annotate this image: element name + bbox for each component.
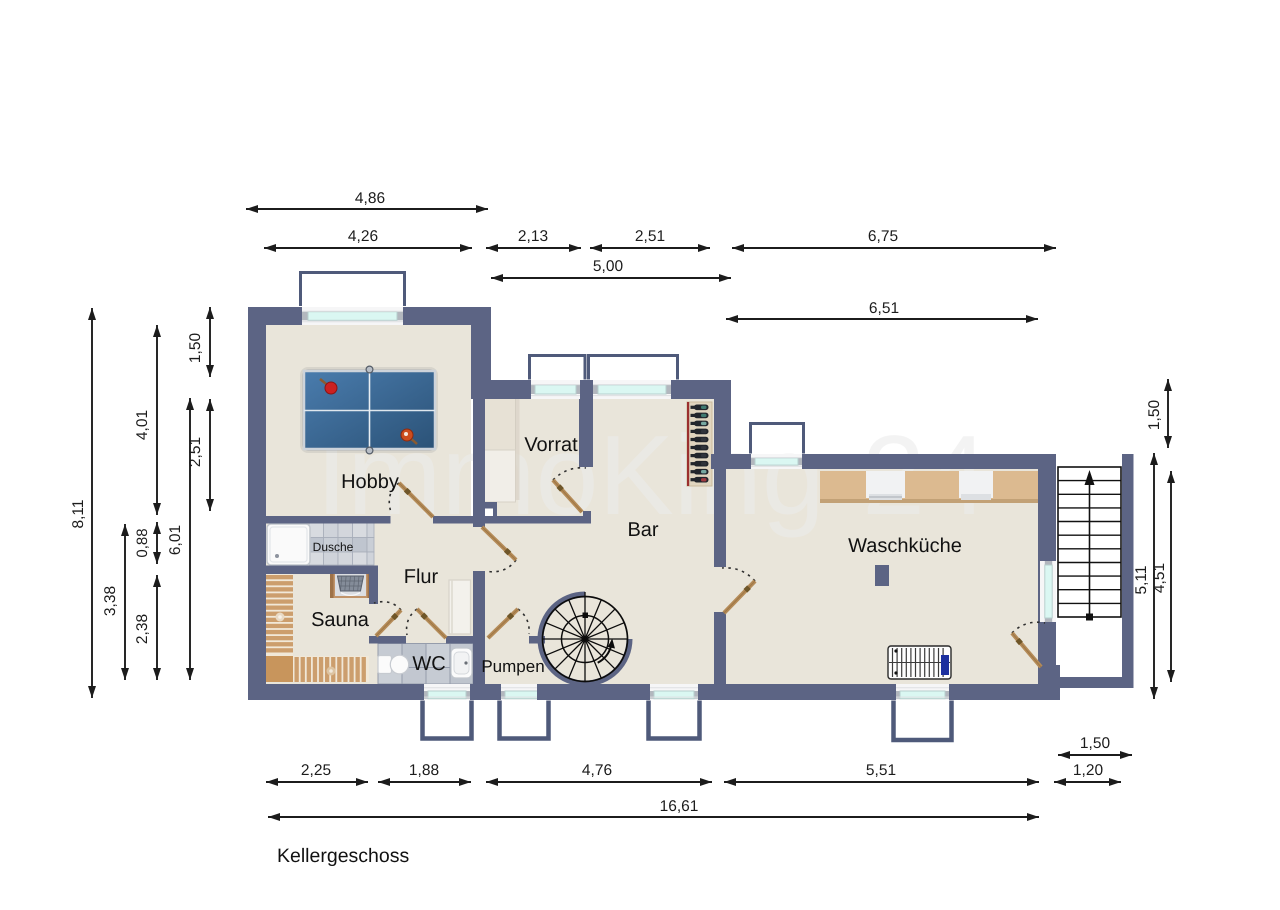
svg-text:Hobby: Hobby: [341, 471, 399, 493]
svg-text:Sauna: Sauna: [311, 609, 370, 631]
svg-text:Waschküche: Waschküche: [848, 535, 962, 557]
svg-text:1,20: 1,20: [1073, 762, 1104, 779]
svg-text:2,25: 2,25: [301, 762, 331, 779]
svg-text:2,38: 2,38: [134, 614, 151, 644]
svg-text:5,11: 5,11: [1133, 565, 1150, 594]
svg-text:16,61: 16,61: [660, 798, 699, 815]
svg-text:Vorrat: Vorrat: [524, 434, 578, 456]
svg-text:1,88: 1,88: [409, 762, 439, 779]
svg-text:Flur: Flur: [404, 566, 439, 588]
svg-text:0,88: 0,88: [134, 528, 151, 557]
svg-text:1,50: 1,50: [1146, 400, 1163, 431]
svg-text:2,51: 2,51: [635, 228, 665, 245]
svg-text:Bar: Bar: [627, 519, 658, 541]
svg-text:1,50: 1,50: [187, 333, 204, 364]
svg-text:6,75: 6,75: [868, 228, 898, 245]
svg-text:4,26: 4,26: [348, 228, 378, 245]
svg-text:Kellergeschoss: Kellergeschoss: [277, 845, 409, 867]
svg-text:6,51: 6,51: [869, 300, 899, 317]
svg-text:6,01: 6,01: [167, 525, 184, 555]
svg-text:WC: WC: [412, 653, 445, 675]
svg-text:2,13: 2,13: [518, 228, 548, 245]
svg-text:Dusche: Dusche: [313, 540, 354, 554]
svg-text:4,76: 4,76: [582, 762, 612, 779]
svg-text:5,00: 5,00: [593, 258, 624, 275]
svg-text:5,51: 5,51: [866, 762, 896, 779]
svg-text:Pumpen: Pumpen: [481, 657, 544, 676]
svg-text:1,50: 1,50: [1080, 735, 1111, 752]
svg-text:8,11: 8,11: [70, 499, 87, 528]
svg-text:3,38: 3,38: [102, 586, 119, 616]
svg-text:4,01: 4,01: [134, 410, 151, 440]
svg-text:4,51: 4,51: [1151, 563, 1168, 593]
svg-text:4,86: 4,86: [355, 190, 385, 207]
